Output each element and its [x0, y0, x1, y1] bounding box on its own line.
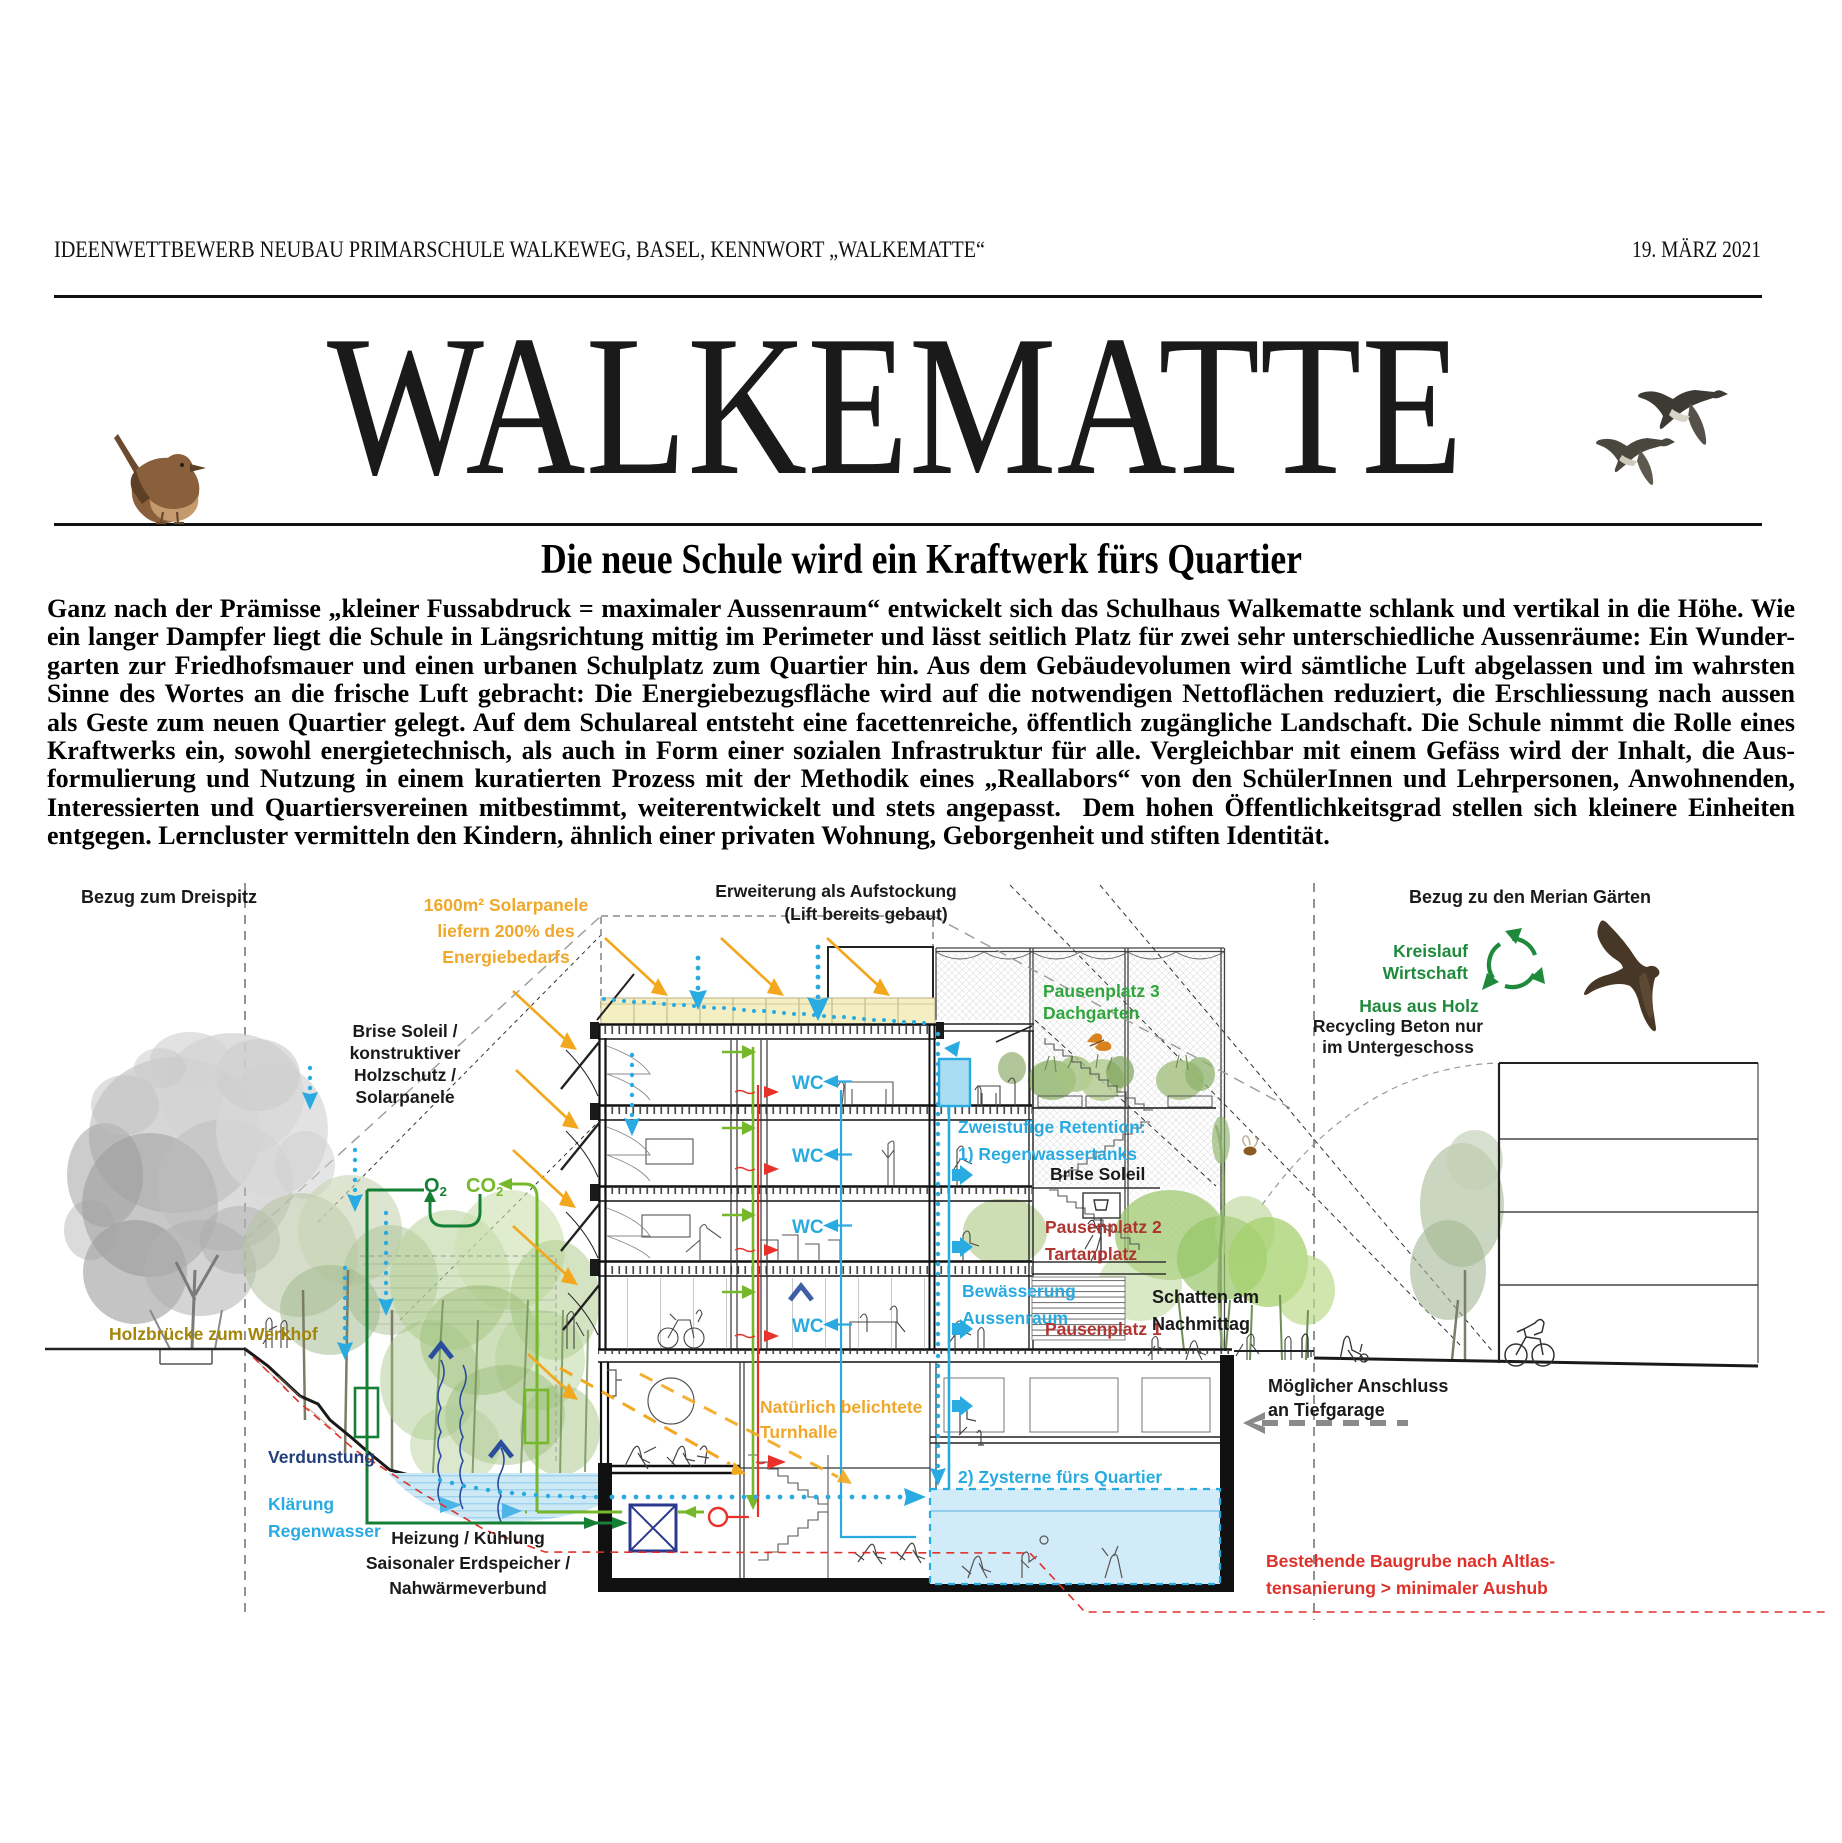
- svg-text:Pausenplatz 2: Pausenplatz 2: [1045, 1217, 1162, 1237]
- svg-text:Zweistufige Retention:: Zweistufige Retention:: [958, 1117, 1146, 1137]
- svg-text:Solarpanele: Solarpanele: [355, 1087, 454, 1107]
- svg-text:(Lift bereits gebaut): (Lift bereits gebaut): [784, 904, 947, 924]
- svg-text:Brise Soleil: Brise Soleil: [1050, 1164, 1145, 1184]
- svg-text:Wirtschaft: Wirtschaft: [1383, 963, 1469, 983]
- svg-text:Holzbrücke zum Werkhof: Holzbrücke zum Werkhof: [109, 1324, 318, 1344]
- svg-text:Nahwärmeverbund: Nahwärmeverbund: [389, 1578, 547, 1598]
- svg-text:Holzschutz /: Holzschutz /: [354, 1065, 456, 1085]
- svg-text:an Tiefgarage: an Tiefgarage: [1268, 1400, 1385, 1420]
- svg-text:Pausenplatz 1: Pausenplatz 1: [1045, 1319, 1162, 1339]
- svg-text:Bestehende Baugrube nach Altla: Bestehende Baugrube nach Altlas-: [1266, 1551, 1555, 1571]
- svg-text:tensanierung > minimaler Aushu: tensanierung > minimaler Aushub: [1266, 1578, 1548, 1598]
- svg-text:Pausenplatz 3: Pausenplatz 3: [1043, 981, 1160, 1001]
- svg-text:Heizung / Kühlung: Heizung / Kühlung: [391, 1528, 545, 1548]
- svg-text:1600m² Solarpanele: 1600m² Solarpanele: [424, 895, 589, 915]
- svg-text:Nachmittag: Nachmittag: [1152, 1314, 1250, 1334]
- svg-text:1) Regenwassertanks: 1) Regenwassertanks: [958, 1144, 1137, 1164]
- svg-text:Erweiterung als Aufstockung: Erweiterung als Aufstockung: [715, 881, 956, 901]
- svg-text:CO2: CO2: [466, 1175, 503, 1199]
- svg-text:WC: WC: [792, 1073, 824, 1094]
- svg-text:WC: WC: [792, 1316, 824, 1337]
- svg-text:Saisonaler Erdspeicher /: Saisonaler Erdspeicher /: [366, 1553, 570, 1573]
- svg-text:Haus aus Holz: Haus aus Holz: [1359, 996, 1479, 1016]
- svg-text:Bewässerung: Bewässerung: [962, 1281, 1076, 1301]
- svg-text:liefern 200% des: liefern 200% des: [437, 921, 574, 941]
- svg-text:Tartanplatz: Tartanplatz: [1045, 1244, 1137, 1264]
- svg-text:im Untergeschoss: im Untergeschoss: [1322, 1037, 1474, 1057]
- svg-text:Klärung: Klärung: [268, 1494, 334, 1514]
- svg-text:Natürlich belichtete: Natürlich belichtete: [760, 1397, 923, 1417]
- svg-text:Schatten am: Schatten am: [1152, 1287, 1259, 1307]
- svg-text:WC: WC: [792, 1217, 824, 1238]
- svg-text:Recycling Beton nur: Recycling Beton nur: [1313, 1016, 1483, 1036]
- svg-text:WC: WC: [792, 1146, 824, 1167]
- svg-text:O2: O2: [424, 1175, 447, 1199]
- svg-text:Dachgarten: Dachgarten: [1043, 1003, 1139, 1023]
- svg-text:Möglicher Anschluss: Möglicher Anschluss: [1268, 1376, 1448, 1396]
- svg-text:Turnhalle: Turnhalle: [760, 1422, 838, 1442]
- svg-text:Bezug zum Dreispitz: Bezug zum Dreispitz: [81, 887, 257, 907]
- svg-text:Brise Soleil /: Brise Soleil /: [352, 1021, 457, 1041]
- svg-text:konstruktiver: konstruktiver: [350, 1043, 461, 1063]
- svg-text:2) Zysterne fürs Quartier: 2) Zysterne fürs Quartier: [958, 1467, 1162, 1487]
- svg-text:Regenwasser: Regenwasser: [268, 1521, 381, 1541]
- svg-text:Energiebedarfs: Energiebedarfs: [442, 947, 570, 967]
- svg-text:Verdunstung: Verdunstung: [268, 1447, 375, 1467]
- svg-text:Bezug zu den Merian Gärten: Bezug zu den Merian Gärten: [1409, 887, 1651, 907]
- svg-text:Kreislauf: Kreislauf: [1393, 941, 1468, 961]
